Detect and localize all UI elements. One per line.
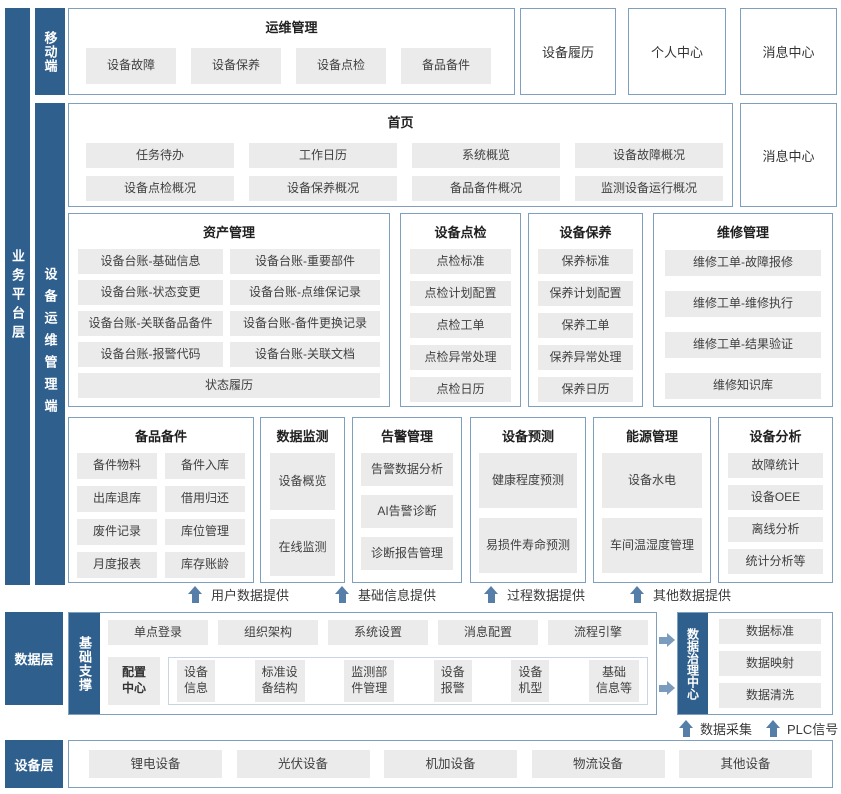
section-equipment-inspection: 设备点检 点检标准 点检计划配置 点检工单 点检异常处理 点检日历	[400, 213, 521, 407]
flow-label: 基础信息提供	[358, 585, 436, 604]
menu-item: 告警数据分析	[361, 453, 453, 486]
menu-item: 设备保养	[191, 48, 281, 84]
flow-process-data: 过程数据提供	[484, 585, 585, 604]
menu-item: 保养异常处理	[538, 345, 633, 370]
flow-label: 数据采集	[700, 719, 752, 738]
up-arrow-icon	[766, 720, 781, 737]
section-basic-support: 基础支撑 单点登录 组织架构 系统设置 消息配置 流程引擎 配置 中心 设备 信…	[68, 612, 657, 715]
platform-service-items: 单点登录 组织架构 系统设置 消息配置 流程引擎	[108, 620, 648, 645]
menu-item: 系统概览	[412, 143, 560, 168]
menu-item: 设备台账-备件更换记录	[230, 311, 380, 336]
menu-item: AI告警诊断	[361, 495, 453, 528]
up-arrow-icon	[630, 586, 645, 603]
box-equipment-history: 设备履历	[520, 8, 616, 95]
menu-item: 数据标准	[719, 619, 821, 644]
section-title: 设备保养	[529, 214, 642, 241]
menu-item: 维修知识库	[665, 373, 821, 399]
section-title: 首页	[69, 104, 732, 131]
menu-item: 设备台账-关联备品备件	[78, 311, 223, 336]
menu-item: 故障统计	[728, 453, 823, 478]
section-title: 告警管理	[353, 418, 461, 445]
inspection-items: 点检标准 点检计划配置 点检工单 点检异常处理 点检日历	[401, 249, 520, 402]
menu-item: 保养计划配置	[538, 281, 633, 306]
device-item: 其他设备	[679, 750, 812, 778]
section-title: 设备分析	[719, 418, 832, 445]
menu-item: 维修工单-维修执行	[665, 291, 821, 317]
section-device-layer: 锂电设备 光伏设备 机加设备 物流设备 其他设备	[68, 740, 833, 788]
menu-item: 月度报表	[77, 552, 157, 578]
governance-items: 数据标准 数据映射 数据清洗	[708, 613, 832, 714]
flow-label: 用户数据提供	[211, 585, 289, 604]
analysis-items: 故障统计 设备OEE 离线分析 统计分析等	[719, 453, 832, 574]
menu-item: 库存账龄	[165, 552, 245, 578]
repair-items: 维修工单-故障报修 维修工单-维修执行 维修工单-结果验证 维修知识库	[654, 250, 832, 399]
flow-data-collection: 数据采集	[679, 719, 752, 738]
up-arrow-icon	[679, 720, 694, 737]
home-items: 任务待办 工作日历 系统概览 设备故障概况 设备点检概况 设备保养概况 备品备件…	[69, 131, 732, 201]
menu-item: 保养工单	[538, 313, 633, 338]
menu-item: 诊断报告管理	[361, 537, 453, 570]
section-spare-parts: 备品备件 备件物料 备件入库 出库退库 借用归还 废件记录 库位管理 月度报表 …	[68, 417, 254, 583]
flow-label: PLC信号	[787, 719, 838, 738]
section-operations-management: 运维管理 设备故障 设备保养 设备点检 备品备件	[68, 8, 515, 95]
flow-basic-info: 基础信息提供	[335, 585, 436, 604]
up-arrow-icon	[484, 586, 499, 603]
operations-items: 设备故障 设备保养 设备点检 备品备件	[69, 36, 514, 84]
menu-item: 出库退库	[77, 486, 157, 512]
menu-item: 库位管理	[165, 519, 245, 545]
menu-item: 备件物料	[77, 453, 157, 479]
section-title: 设备预测	[471, 418, 585, 445]
section-title: 设备点检	[401, 214, 520, 241]
menu-item: 设备台账-点维保记录	[230, 280, 380, 305]
section-title: 资产管理	[69, 214, 389, 241]
rail-mobile-client: 移动端	[35, 8, 65, 95]
section-equipment-analysis: 设备分析 故障统计 设备OEE 离线分析 统计分析等	[718, 417, 833, 583]
menu-item: 易损件寿命预测	[479, 518, 577, 573]
menu-item: 监测设备运行概况	[575, 176, 723, 201]
section-asset-management: 资产管理 设备台账-基础信息 设备台账-重要部件 设备台账-状态变更 设备台账-…	[68, 213, 390, 407]
section-title: 能源管理	[594, 418, 710, 445]
menu-item: 设备 信息	[177, 660, 215, 701]
up-arrow-icon	[188, 586, 203, 603]
menu-item: 设备概览	[270, 453, 335, 510]
label-device-layer: 设备层	[5, 740, 63, 788]
menu-item: 设备 报警	[434, 660, 472, 701]
menu-item: 设备水电	[602, 453, 702, 508]
alarm-items: 告警数据分析 AI告警诊断 诊断报告管理	[353, 453, 461, 570]
menu-item: 备品备件概况	[412, 176, 560, 201]
section-title: 备品备件	[69, 418, 253, 445]
section-repair-management: 维修管理 维修工单-故障报修 维修工单-维修执行 维修工单-结果验证 维修知识库	[653, 213, 833, 407]
menu-item: 点检日历	[410, 377, 511, 402]
menu-item: 监测部 件管理	[344, 660, 394, 701]
menu-item: 数据清洗	[719, 683, 821, 708]
config-items-box: 设备 信息 标准设 备结构 监测部 件管理 设备 报警 设备 机型 基础 信息等	[168, 657, 648, 705]
section-energy-management: 能源管理 设备水电 车间温湿度管理	[593, 417, 711, 583]
menu-item: 设备故障	[86, 48, 176, 84]
rail-equipment-ops-client: 设备运维管理端	[35, 103, 65, 585]
menu-item: 离线分析	[728, 517, 823, 542]
menu-item: 备件入库	[165, 453, 245, 479]
menu-item: 设备台账-状态变更	[78, 280, 223, 305]
menu-item: 借用归还	[165, 486, 245, 512]
section-data-governance-center: 数据治理中心 数据标准 数据映射 数据清洗	[677, 612, 833, 715]
flow-label: 过程数据提供	[507, 585, 585, 604]
section-equipment-prediction: 设备预测 健康程度预测 易损件寿命预测	[470, 417, 586, 583]
menu-item: 统计分析等	[728, 549, 823, 574]
menu-item: 健康程度预测	[479, 453, 577, 508]
menu-item: 工作日历	[249, 143, 397, 168]
menu-item: 点检工单	[410, 313, 511, 338]
menu-item: 标准设 备结构	[255, 660, 305, 701]
section-equipment-maintenance: 设备保养 保养标准 保养计划配置 保养工单 保养异常处理 保养日历	[528, 213, 643, 407]
menu-item: 数据映射	[719, 651, 821, 676]
flow-plc-signal: PLC信号	[766, 719, 838, 738]
rail-basic-support: 基础支撑	[69, 613, 100, 714]
right-arrow-icon	[659, 633, 675, 648]
monitoring-items: 设备概览 在线监测	[261, 453, 344, 576]
menu-item: 设备点检	[296, 48, 386, 84]
menu-item: 任务待办	[86, 143, 234, 168]
prediction-items: 健康程度预测 易损件寿命预测	[471, 453, 585, 573]
menu-item: 设备台账-关联文档	[230, 342, 380, 367]
config-center-row: 配置 中心 设备 信息 标准设 备结构 监测部 件管理 设备 报警 设备 机型 …	[108, 657, 648, 705]
menu-item: 维修工单-故障报修	[665, 250, 821, 276]
menu-item: 设备故障概况	[575, 143, 723, 168]
section-title: 维修管理	[654, 214, 832, 241]
menu-item: 设备 机型	[511, 660, 549, 701]
menu-item: 状态履历	[78, 373, 380, 398]
menu-item: 设备台账-基础信息	[78, 249, 223, 274]
menu-item: 维修工单-结果验证	[665, 332, 821, 358]
section-alarm-management: 告警管理 告警数据分析 AI告警诊断 诊断报告管理	[352, 417, 462, 583]
section-title: 数据监测	[261, 418, 344, 445]
menu-item: 设备点检概况	[86, 176, 234, 201]
menu-item: 保养日历	[538, 377, 633, 402]
device-item: 光伏设备	[237, 750, 370, 778]
menu-item: 保养标准	[538, 249, 633, 274]
architecture-diagram: 业务平台层 移动端 设备运维管理端 运维管理 设备故障 设备保养 设备点检 备品…	[0, 0, 841, 794]
menu-item: 设备台账-报警代码	[78, 342, 223, 367]
menu-item: 系统设置	[328, 620, 428, 645]
menu-item: 消息配置	[438, 620, 538, 645]
label-data-layer: 数据层	[5, 612, 63, 705]
menu-item: 车间温湿度管理	[602, 518, 702, 573]
maintenance-items: 保养标准 保养计划配置 保养工单 保养异常处理 保养日历	[529, 249, 642, 402]
basic-support-body: 单点登录 组织架构 系统设置 消息配置 流程引擎 配置 中心 设备 信息 标准设…	[100, 613, 656, 714]
flow-other-data: 其他数据提供	[630, 585, 731, 604]
device-item: 物流设备	[532, 750, 665, 778]
config-center-label: 配置 中心	[108, 657, 160, 705]
menu-item: 设备OEE	[728, 485, 823, 510]
menu-item: 点检计划配置	[410, 281, 511, 306]
section-title: 运维管理	[69, 9, 514, 36]
menu-item: 基础 信息等	[589, 660, 639, 701]
right-arrow-icon	[659, 681, 675, 696]
asset-items: 设备台账-基础信息 设备台账-重要部件 设备台账-状态变更 设备台账-点维保记录…	[69, 249, 389, 398]
menu-item: 在线监测	[270, 519, 335, 576]
box-personal-center: 个人中心	[628, 8, 726, 95]
box-message-center: 消息中心	[740, 103, 837, 207]
device-item: 机加设备	[384, 750, 517, 778]
menu-item: 备品备件	[401, 48, 491, 84]
section-home: 首页 任务待办 工作日历 系统概览 设备故障概况 设备点检概况 设备保养概况 备…	[68, 103, 733, 207]
menu-item: 点检标准	[410, 249, 511, 274]
menu-item: 设备保养概况	[249, 176, 397, 201]
menu-item: 点检异常处理	[410, 345, 511, 370]
flow-label: 其他数据提供	[653, 585, 731, 604]
menu-item: 组织架构	[218, 620, 318, 645]
up-arrow-icon	[335, 586, 350, 603]
spare-items: 备件物料 备件入库 出库退库 借用归还 废件记录 库位管理 月度报表 库存账龄	[69, 453, 253, 578]
flow-user-data: 用户数据提供	[188, 585, 289, 604]
menu-item: 流程引擎	[548, 620, 648, 645]
device-item: 锂电设备	[89, 750, 222, 778]
rail-data-governance: 数据治理中心	[678, 613, 708, 714]
section-data-monitoring: 数据监测 设备概览 在线监测	[260, 417, 345, 583]
box-message-center: 消息中心	[740, 8, 837, 95]
menu-item: 设备台账-重要部件	[230, 249, 380, 274]
rail-business-platform-layer: 业务平台层	[5, 8, 30, 585]
energy-items: 设备水电 车间温湿度管理	[594, 453, 710, 573]
menu-item: 废件记录	[77, 519, 157, 545]
menu-item: 单点登录	[108, 620, 208, 645]
